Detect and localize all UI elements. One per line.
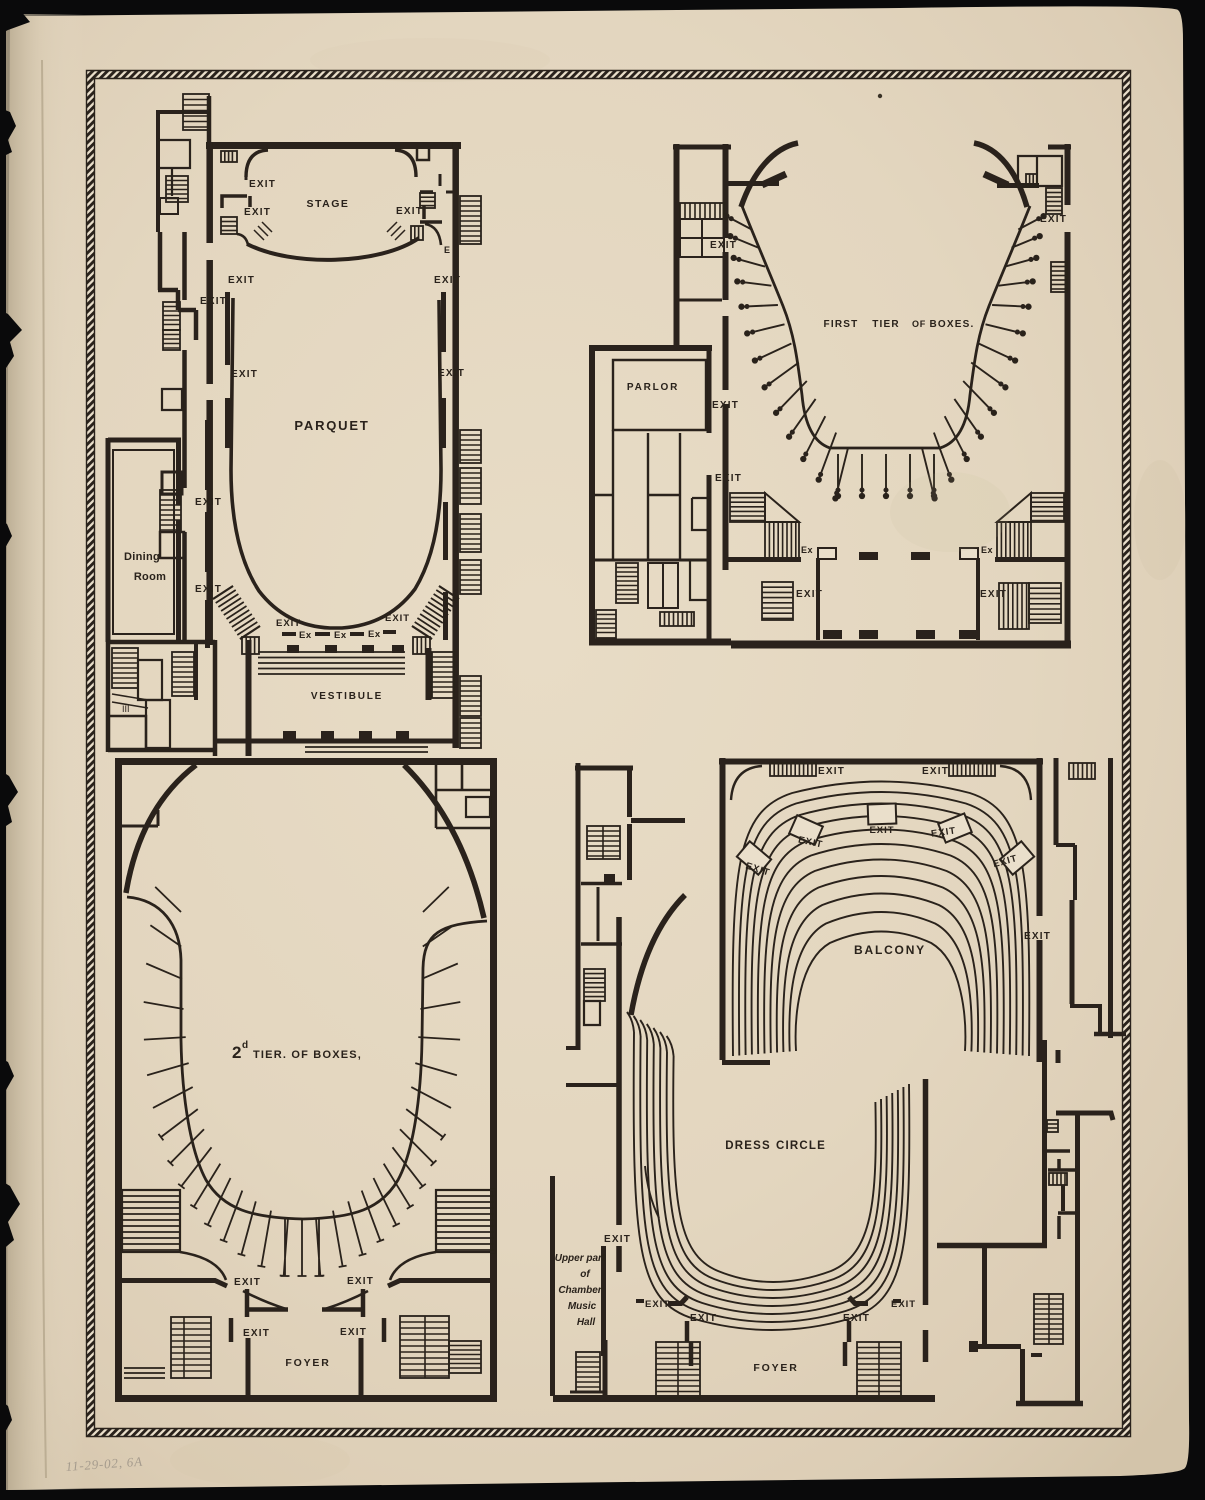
svg-text:E: E <box>444 245 451 255</box>
svg-text:EXIT: EXIT <box>796 589 823 600</box>
svg-text:EXIT: EXIT <box>385 613 410 624</box>
svg-text:BOXES.: BOXES. <box>930 319 975 330</box>
svg-text:EXIT: EXIT <box>712 400 739 411</box>
svg-text:EXIT: EXIT <box>200 296 227 307</box>
svg-text:EXIT: EXIT <box>980 589 1007 600</box>
svg-text:BALCONY: BALCONY <box>854 943 926 957</box>
svg-text:EXIT: EXIT <box>228 275 255 286</box>
svg-text:EXIT: EXIT <box>891 1299 916 1310</box>
svg-text:PARLOR: PARLOR <box>627 382 679 393</box>
svg-text:EXIT: EXIT <box>818 766 845 777</box>
svg-text:EXIT: EXIT <box>340 1327 367 1338</box>
svg-text:CIRCLE: CIRCLE <box>776 1140 826 1152</box>
svg-text:EXIT: EXIT <box>690 1313 717 1324</box>
svg-text:PARQUET: PARQUET <box>294 418 369 433</box>
svg-text:EXIT: EXIT <box>922 766 949 777</box>
svg-text:EXIT: EXIT <box>869 825 894 836</box>
svg-text:EXIT: EXIT <box>195 497 222 508</box>
svg-text:EXIT: EXIT <box>604 1234 631 1245</box>
svg-text:TIER. OF BOXES,: TIER. OF BOXES, <box>253 1049 362 1061</box>
svg-text:EXIT: EXIT <box>347 1276 374 1287</box>
svg-text:VESTIBULE: VESTIBULE <box>311 691 383 702</box>
svg-text:EXIT: EXIT <box>396 206 423 217</box>
svg-text:EXIT: EXIT <box>438 368 465 379</box>
svg-text:Room: Room <box>134 571 166 583</box>
svg-text:FOYER: FOYER <box>285 1357 330 1369</box>
svg-text:Ex: Ex <box>801 545 813 555</box>
svg-text:EXIT: EXIT <box>715 473 742 484</box>
svg-text:Dining: Dining <box>124 551 160 563</box>
svg-text:EXIT: EXIT <box>249 179 276 190</box>
svg-text:of: of <box>580 1269 591 1280</box>
svg-text:d: d <box>242 1040 248 1051</box>
svg-text:Music: Music <box>568 1301 597 1312</box>
svg-text:FOYER: FOYER <box>753 1362 798 1374</box>
svg-text:EXIT: EXIT <box>195 584 222 595</box>
svg-text:Ex: Ex <box>981 545 993 555</box>
svg-text:Hall: Hall <box>577 1317 596 1328</box>
svg-text:2: 2 <box>232 1043 241 1062</box>
svg-text:Ex: Ex <box>368 629 381 640</box>
svg-text:EXIT: EXIT <box>710 240 737 251</box>
svg-text:EXIT: EXIT <box>243 1328 270 1339</box>
svg-text:Ex: Ex <box>334 630 347 641</box>
svg-text:OF: OF <box>912 319 926 329</box>
svg-text:EXIT: EXIT <box>843 1313 870 1324</box>
svg-text:Ex: Ex <box>299 630 312 641</box>
svg-text:TIER: TIER <box>872 319 900 330</box>
svg-text:EXIT: EXIT <box>434 275 461 286</box>
svg-text:EXIT: EXIT <box>276 618 301 629</box>
svg-text:III: III <box>122 704 130 714</box>
svg-text:EXIT: EXIT <box>244 207 271 218</box>
svg-text:Chamber: Chamber <box>558 1285 602 1296</box>
svg-text:EXIT: EXIT <box>1024 931 1051 942</box>
svg-text:DRESS: DRESS <box>725 1140 771 1152</box>
svg-text:EXIT: EXIT <box>645 1299 670 1310</box>
svg-text:EXIT: EXIT <box>231 369 258 380</box>
svg-text:EXIT: EXIT <box>234 1277 261 1288</box>
svg-text:FIRST: FIRST <box>824 319 859 330</box>
svg-text:Upper part: Upper part <box>555 1253 606 1264</box>
svg-text:STAGE: STAGE <box>307 198 350 210</box>
